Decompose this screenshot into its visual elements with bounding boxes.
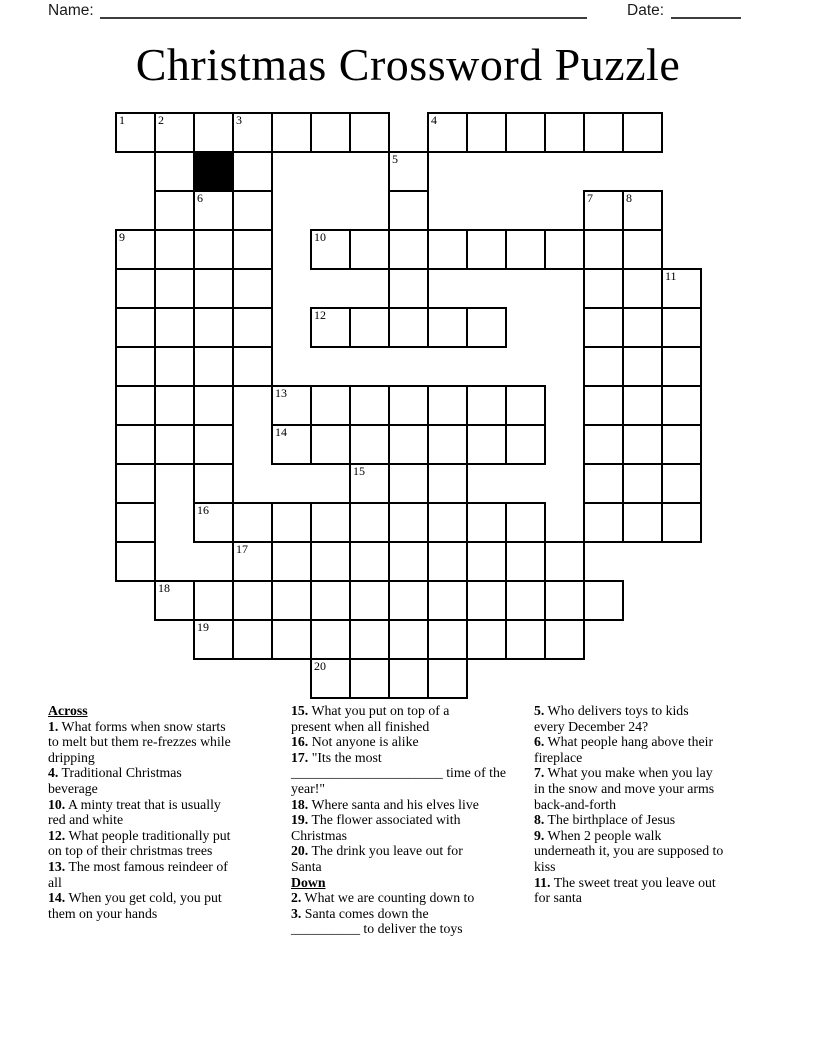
clue-column: 5. Who delivers toys to kids every Decem… [534,703,772,906]
grid-cell[interactable] [505,112,546,153]
grid-cell[interactable] [622,502,663,543]
clue-number: 10. [48,797,65,812]
grid-cell[interactable] [505,580,546,621]
cell-number: 16 [197,504,209,517]
clue-item: 6. What people hang above their fireplac… [534,734,772,765]
grid-cell[interactable] [349,541,390,582]
worksheet-page: Name: Date: Christmas Crossword Puzzle 1… [0,0,816,1056]
grid-cell[interactable] [505,229,546,270]
cell-number: 4 [431,114,437,127]
cell-number: 17 [236,543,248,556]
grid-cell[interactable] [271,541,312,582]
grid-cell[interactable] [115,502,156,543]
grid-cell[interactable] [349,658,390,699]
grid-cell[interactable] [466,580,507,621]
grid-cell[interactable]: 8 [622,190,663,231]
grid-cell[interactable] [466,424,507,465]
grid-cell[interactable] [505,385,546,426]
grid-cell[interactable]: 17 [232,541,273,582]
clue-item: 1. What forms when snow starts to melt b… [48,719,286,766]
grid-cell[interactable] [622,385,663,426]
grid-cell[interactable] [349,502,390,543]
cell-number: 2 [158,114,164,127]
grid-cell[interactable] [388,463,429,504]
grid-cell[interactable] [310,541,351,582]
grid-cell[interactable] [310,424,351,465]
grid-cell[interactable] [349,385,390,426]
grid-cell[interactable] [427,619,468,660]
grid-cell[interactable] [622,307,663,348]
clue-section-header: Down [291,875,529,891]
clue-number: 1. [48,719,58,734]
grid-cell[interactable] [271,112,312,153]
grid-cell[interactable] [388,619,429,660]
clue-number: 9. [534,828,544,843]
clue-item: 19. The flower associated with Christmas [291,812,529,843]
grid-cell[interactable]: 20 [310,658,351,699]
clue-number: 16. [291,734,308,749]
clue-number: 11. [534,875,551,890]
cell-number: 12 [314,309,326,322]
grid-cell[interactable] [115,346,156,387]
cell-number: 11 [665,270,677,283]
clue-item: 5. Who delivers toys to kids every Decem… [534,703,772,734]
grid-cell[interactable] [115,541,156,582]
name-label: Name: [48,2,94,20]
clue-item: 10. A minty treat that is usually red an… [48,797,286,828]
grid-cell[interactable]: 1 [115,112,156,153]
grid-cell[interactable] [154,346,195,387]
grid-cell[interactable] [661,346,702,387]
clue-item: 18. Where santa and his elves live [291,797,529,813]
grid-cell[interactable]: 5 [388,151,429,192]
clue-number: 20. [291,843,308,858]
grid-cell[interactable] [232,229,273,270]
grid-cell[interactable] [622,463,663,504]
grid-cell[interactable] [193,307,234,348]
cell-number: 3 [236,114,242,127]
clue-item: 12. What people traditionally put on top… [48,828,286,859]
grid-cell[interactable] [115,424,156,465]
grid-cell[interactable] [427,229,468,270]
clue-number: 2. [291,890,301,905]
grid-cell[interactable] [466,307,507,348]
grid-cell[interactable] [583,385,624,426]
grid-cell[interactable] [154,424,195,465]
grid-cell[interactable] [193,463,234,504]
grid-cell[interactable] [622,229,663,270]
grid-cell[interactable] [349,580,390,621]
grid-cell[interactable] [232,619,273,660]
grid-cell[interactable] [271,580,312,621]
grid-cell[interactable]: 18 [154,580,195,621]
cell-number: 7 [587,192,593,205]
grid-cell[interactable] [583,268,624,309]
grid-cell[interactable] [427,307,468,348]
grid-cell[interactable] [349,112,390,153]
cell-number: 8 [626,192,632,205]
date-label: Date: [627,2,664,20]
clue-item: 16. Not anyone is alike [291,734,529,750]
grid-cell[interactable] [661,463,702,504]
grid-cell[interactable] [310,112,351,153]
grid-cell[interactable] [349,424,390,465]
grid-cell[interactable] [505,502,546,543]
grid-cell[interactable]: 4 [427,112,468,153]
clue-number: 6. [534,734,544,749]
cell-number: 18 [158,582,170,595]
cell-number: 15 [353,465,365,478]
grid-cell[interactable] [427,580,468,621]
grid-cell[interactable] [583,580,624,621]
grid-cell[interactable] [583,229,624,270]
grid-cell[interactable] [544,580,585,621]
clue-number: 4. [48,765,58,780]
clue-column: Across1. What forms when snow starts to … [48,703,286,921]
grid-cell[interactable] [154,307,195,348]
grid-cell[interactable]: 13 [271,385,312,426]
grid-cell[interactable] [232,151,273,192]
grid-cell[interactable] [388,580,429,621]
grid-cell[interactable] [544,541,585,582]
grid-cell[interactable] [388,307,429,348]
clue-number: 14. [48,890,65,905]
grid-cell[interactable] [427,424,468,465]
grid-cell[interactable] [583,502,624,543]
grid-cell[interactable] [310,580,351,621]
grid-cell[interactable] [154,151,195,192]
clue-number: 19. [291,812,308,827]
grid-cell[interactable] [388,424,429,465]
grid-cell[interactable] [622,112,663,153]
grid-cell[interactable] [583,463,624,504]
clue-number: 12. [48,828,65,843]
grid-cell[interactable] [115,463,156,504]
clue-item: 9. When 2 people walk underneath it, you… [534,828,772,875]
grid-cell[interactable]: 10 [310,229,351,270]
grid-cell[interactable] [193,385,234,426]
grid-cell[interactable] [232,190,273,231]
cell-number: 19 [197,621,209,634]
grid-cell[interactable]: 12 [310,307,351,348]
cell-number: 20 [314,660,326,673]
grid-cell[interactable] [622,268,663,309]
grid-cell[interactable]: 15 [349,463,390,504]
grid-cell[interactable] [544,619,585,660]
cell-number: 13 [275,387,287,400]
grid-cell[interactable] [310,619,351,660]
clue-item: 17. "Its the most ______________________… [291,750,529,797]
cell-number: 6 [197,192,203,205]
cell-number: 9 [119,231,125,244]
grid-cell[interactable] [310,385,351,426]
grid-cell[interactable] [427,463,468,504]
clue-item: 20. The drink you leave out for Santa [291,843,529,874]
clue-item: 15. What you put on top of a present whe… [291,703,529,734]
clue-number: 7. [534,765,544,780]
grid-cell[interactable] [193,112,234,153]
grid-cell[interactable]: 16 [193,502,234,543]
grid-cell[interactable] [232,502,273,543]
grid-cell[interactable] [115,307,156,348]
clue-number: 18. [291,797,308,812]
grid-cell[interactable] [505,424,546,465]
clue-item: 7. What you make when you lay in the sno… [534,765,772,812]
grid-cell[interactable] [544,112,585,153]
cell-number: 10 [314,231,326,244]
clue-number: 8. [534,812,544,827]
grid-cell[interactable] [193,346,234,387]
grid-cell[interactable] [661,424,702,465]
grid-cell[interactable] [388,502,429,543]
grid-cell[interactable]: 14 [271,424,312,465]
grid-cell[interactable] [583,346,624,387]
grid-cell[interactable] [115,268,156,309]
grid-cell[interactable] [349,619,390,660]
grid-cell[interactable] [427,541,468,582]
grid-cell[interactable] [271,619,312,660]
grid-cell[interactable]: 6 [193,190,234,231]
grid-cell[interactable] [193,580,234,621]
grid-cell[interactable] [427,658,468,699]
grid-cell[interactable] [349,229,390,270]
grid-cell[interactable] [310,502,351,543]
black-cell [193,151,234,192]
clue-number: 17. [291,750,308,765]
grid-cell[interactable] [661,502,702,543]
grid-cell[interactable] [271,502,312,543]
grid-cell[interactable]: 7 [583,190,624,231]
clue-item: 2. What we are counting down to [291,890,529,906]
clue-column: 15. What you put on top of a present whe… [291,703,529,937]
grid-cell[interactable] [115,385,156,426]
grid-cell[interactable] [388,385,429,426]
grid-cell[interactable] [583,424,624,465]
grid-cell[interactable] [349,307,390,348]
clue-number: 13. [48,859,65,874]
grid-cell[interactable] [427,385,468,426]
grid-cell[interactable]: 9 [115,229,156,270]
grid-cell[interactable] [622,346,663,387]
date-blank-line[interactable] [671,17,741,19]
grid-cell[interactable]: 3 [232,112,273,153]
grid-cell[interactable] [466,619,507,660]
grid-cell[interactable] [232,346,273,387]
clue-item: 8. The birthplace of Jesus [534,812,772,828]
grid-cell[interactable] [232,268,273,309]
grid-cell[interactable] [232,580,273,621]
grid-cell[interactable] [466,112,507,153]
grid-cell[interactable] [583,112,624,153]
grid-cell[interactable] [193,268,234,309]
clue-item: 11. The sweet treat you leave out for sa… [534,875,772,906]
grid-cell[interactable] [466,229,507,270]
grid-cell[interactable] [232,307,273,348]
grid-cell[interactable] [583,307,624,348]
grid-cell[interactable] [622,424,663,465]
clue-item: 13. The most famous reindeer of all [48,859,286,890]
grid-cell[interactable] [388,190,429,231]
clue-number: 15. [291,703,308,718]
grid-cell[interactable] [544,229,585,270]
clue-number: 5. [534,703,544,718]
grid-cell[interactable] [154,385,195,426]
grid-cell[interactable]: 11 [661,268,702,309]
grid-cell[interactable] [388,268,429,309]
grid-cell[interactable] [388,541,429,582]
grid-cell[interactable] [154,268,195,309]
clue-item: 4. Traditional Christmas beverage [48,765,286,796]
grid-cell[interactable] [427,502,468,543]
clue-number: 3. [291,906,301,921]
grid-cell[interactable]: 19 [193,619,234,660]
clue-item: 14. When you get cold, you put them on y… [48,890,286,921]
grid-cell[interactable] [661,385,702,426]
clue-item: 3. Santa comes down the __________ to de… [291,906,529,937]
grid-cell[interactable] [466,502,507,543]
grid-cell[interactable] [466,385,507,426]
clue-section-header: Across [48,703,286,719]
cell-number: 1 [119,114,125,127]
page-title: Christmas Crossword Puzzle [0,38,816,91]
grid-cell[interactable] [466,541,507,582]
grid-cell[interactable] [661,307,702,348]
grid-cell[interactable] [193,424,234,465]
grid-cell[interactable] [388,229,429,270]
grid-cell[interactable] [154,190,195,231]
grid-cell[interactable] [388,658,429,699]
cell-number: 5 [392,153,398,166]
grid-cell[interactable] [193,229,234,270]
grid-cell[interactable] [505,619,546,660]
name-blank-line[interactable] [100,17,587,19]
cell-number: 14 [275,426,287,439]
grid-cell[interactable] [505,541,546,582]
grid-cell[interactable] [154,229,195,270]
grid-cell[interactable]: 2 [154,112,195,153]
